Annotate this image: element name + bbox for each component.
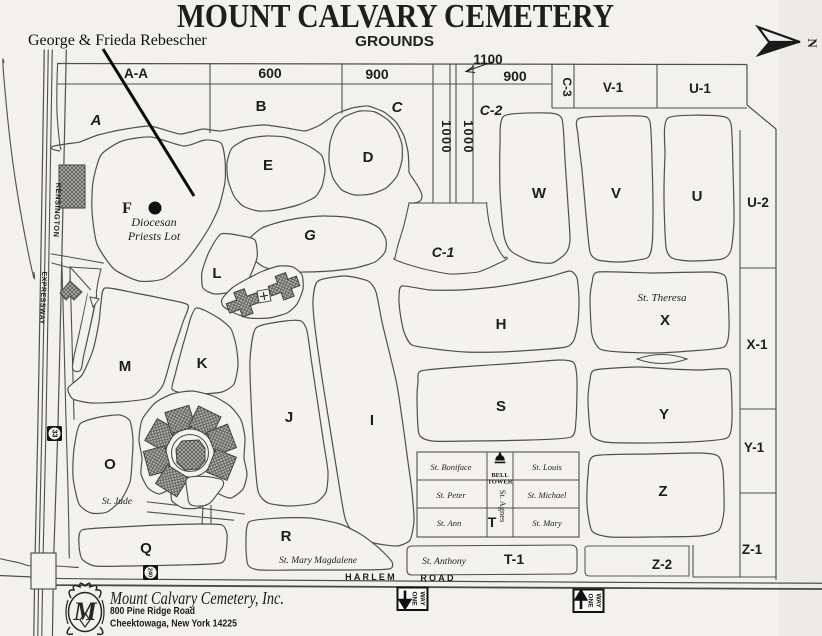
svg-text:Q: Q [140, 540, 152, 557]
svg-text:V: V [611, 185, 621, 202]
svg-text:Mount Calvary Cemetery, Inc.: Mount Calvary Cemetery, Inc. [109, 588, 284, 608]
svg-text:St. Peter: St. Peter [436, 490, 466, 500]
svg-text:X-1: X-1 [746, 337, 768, 352]
svg-text:HARLEM: HARLEM [345, 572, 397, 582]
svg-text:C-3: C-3 [560, 77, 574, 97]
svg-text:U: U [692, 188, 703, 205]
svg-text:St. Ann: St. Ann [437, 518, 461, 528]
svg-text:J: J [285, 409, 293, 426]
svg-text:600: 600 [258, 65, 282, 81]
svg-text:B: B [256, 98, 267, 115]
svg-text:ONE: ONE [587, 594, 594, 609]
svg-text:E: E [263, 157, 273, 174]
svg-text:St. Michael: St. Michael [528, 490, 567, 500]
svg-text:S: S [496, 398, 506, 415]
svg-text:L: L [212, 265, 221, 282]
svg-text:R: R [281, 528, 292, 545]
svg-text:A: A [90, 112, 102, 129]
svg-text:GROUNDS: GROUNDS [355, 33, 434, 50]
svg-text:Z-1: Z-1 [742, 542, 763, 557]
svg-text:Priests Lot: Priests Lot [127, 229, 181, 243]
svg-text:Z-2: Z-2 [652, 557, 672, 572]
svg-text:240: 240 [147, 568, 153, 577]
svg-text:V-1: V-1 [603, 80, 624, 95]
svg-text:St. Louis: St. Louis [532, 462, 562, 472]
svg-text:St. Anthony: St. Anthony [422, 557, 466, 567]
svg-text:MOUNT CALVARY CEMETERY: MOUNT CALVARY CEMETERY [177, 0, 614, 35]
svg-text:800 Pine Ridge Road: 800 Pine Ridge Road [110, 606, 195, 617]
svg-text:M: M [72, 597, 97, 626]
svg-text:D: D [363, 149, 374, 166]
svg-text:T: T [488, 514, 497, 530]
svg-text:C-2: C-2 [480, 102, 503, 118]
svg-text:G: G [304, 227, 316, 244]
svg-text:900: 900 [365, 66, 389, 82]
svg-text:33: 33 [51, 430, 58, 438]
svg-text:St. Mary Magdalene: St. Mary Magdalene [279, 556, 357, 566]
svg-text:K: K [197, 355, 208, 372]
svg-text:O: O [104, 456, 116, 473]
svg-text:C-1: C-1 [432, 244, 455, 260]
svg-text:Diocesan: Diocesan [130, 215, 176, 229]
svg-text:N: N [805, 38, 820, 48]
svg-text:A-A: A-A [124, 66, 148, 81]
svg-text:I: I [370, 412, 374, 429]
svg-text:St. Jude: St. Jude [102, 497, 132, 507]
svg-text:ONE: ONE [411, 592, 418, 607]
svg-text:WAY: WAY [419, 592, 426, 607]
svg-text:TOWER: TOWER [488, 479, 513, 486]
svg-text:WAY: WAY [595, 594, 602, 609]
svg-text:U-2: U-2 [747, 195, 769, 210]
svg-text:U-1: U-1 [689, 81, 711, 96]
svg-text:Y-1: Y-1 [744, 440, 765, 455]
svg-text:St. Agnes: St. Agnes [498, 490, 508, 523]
svg-text:C: C [392, 99, 404, 116]
svg-text:Cheektowaga, New York 14225: Cheektowaga, New York 14225 [110, 619, 237, 630]
svg-text:M: M [119, 358, 132, 375]
svg-text:W: W [532, 185, 547, 202]
svg-text:1000: 1000 [439, 120, 453, 154]
svg-text:T-1: T-1 [504, 551, 524, 567]
svg-text:1100: 1100 [473, 52, 502, 67]
svg-text:St. Boniface: St. Boniface [430, 462, 471, 472]
svg-text:George & Frieda Rebescher: George & Frieda Rebescher [28, 32, 207, 49]
svg-text:St. Mary: St. Mary [532, 518, 562, 528]
svg-text:1000: 1000 [461, 120, 475, 154]
svg-text:Y: Y [659, 406, 669, 423]
svg-text:X: X [660, 312, 670, 329]
svg-text:H: H [496, 316, 507, 333]
svg-text:Z: Z [658, 483, 667, 500]
svg-text:900: 900 [503, 68, 527, 84]
svg-text:ROAD: ROAD [420, 573, 455, 583]
svg-text:St. Theresa: St. Theresa [637, 292, 687, 304]
